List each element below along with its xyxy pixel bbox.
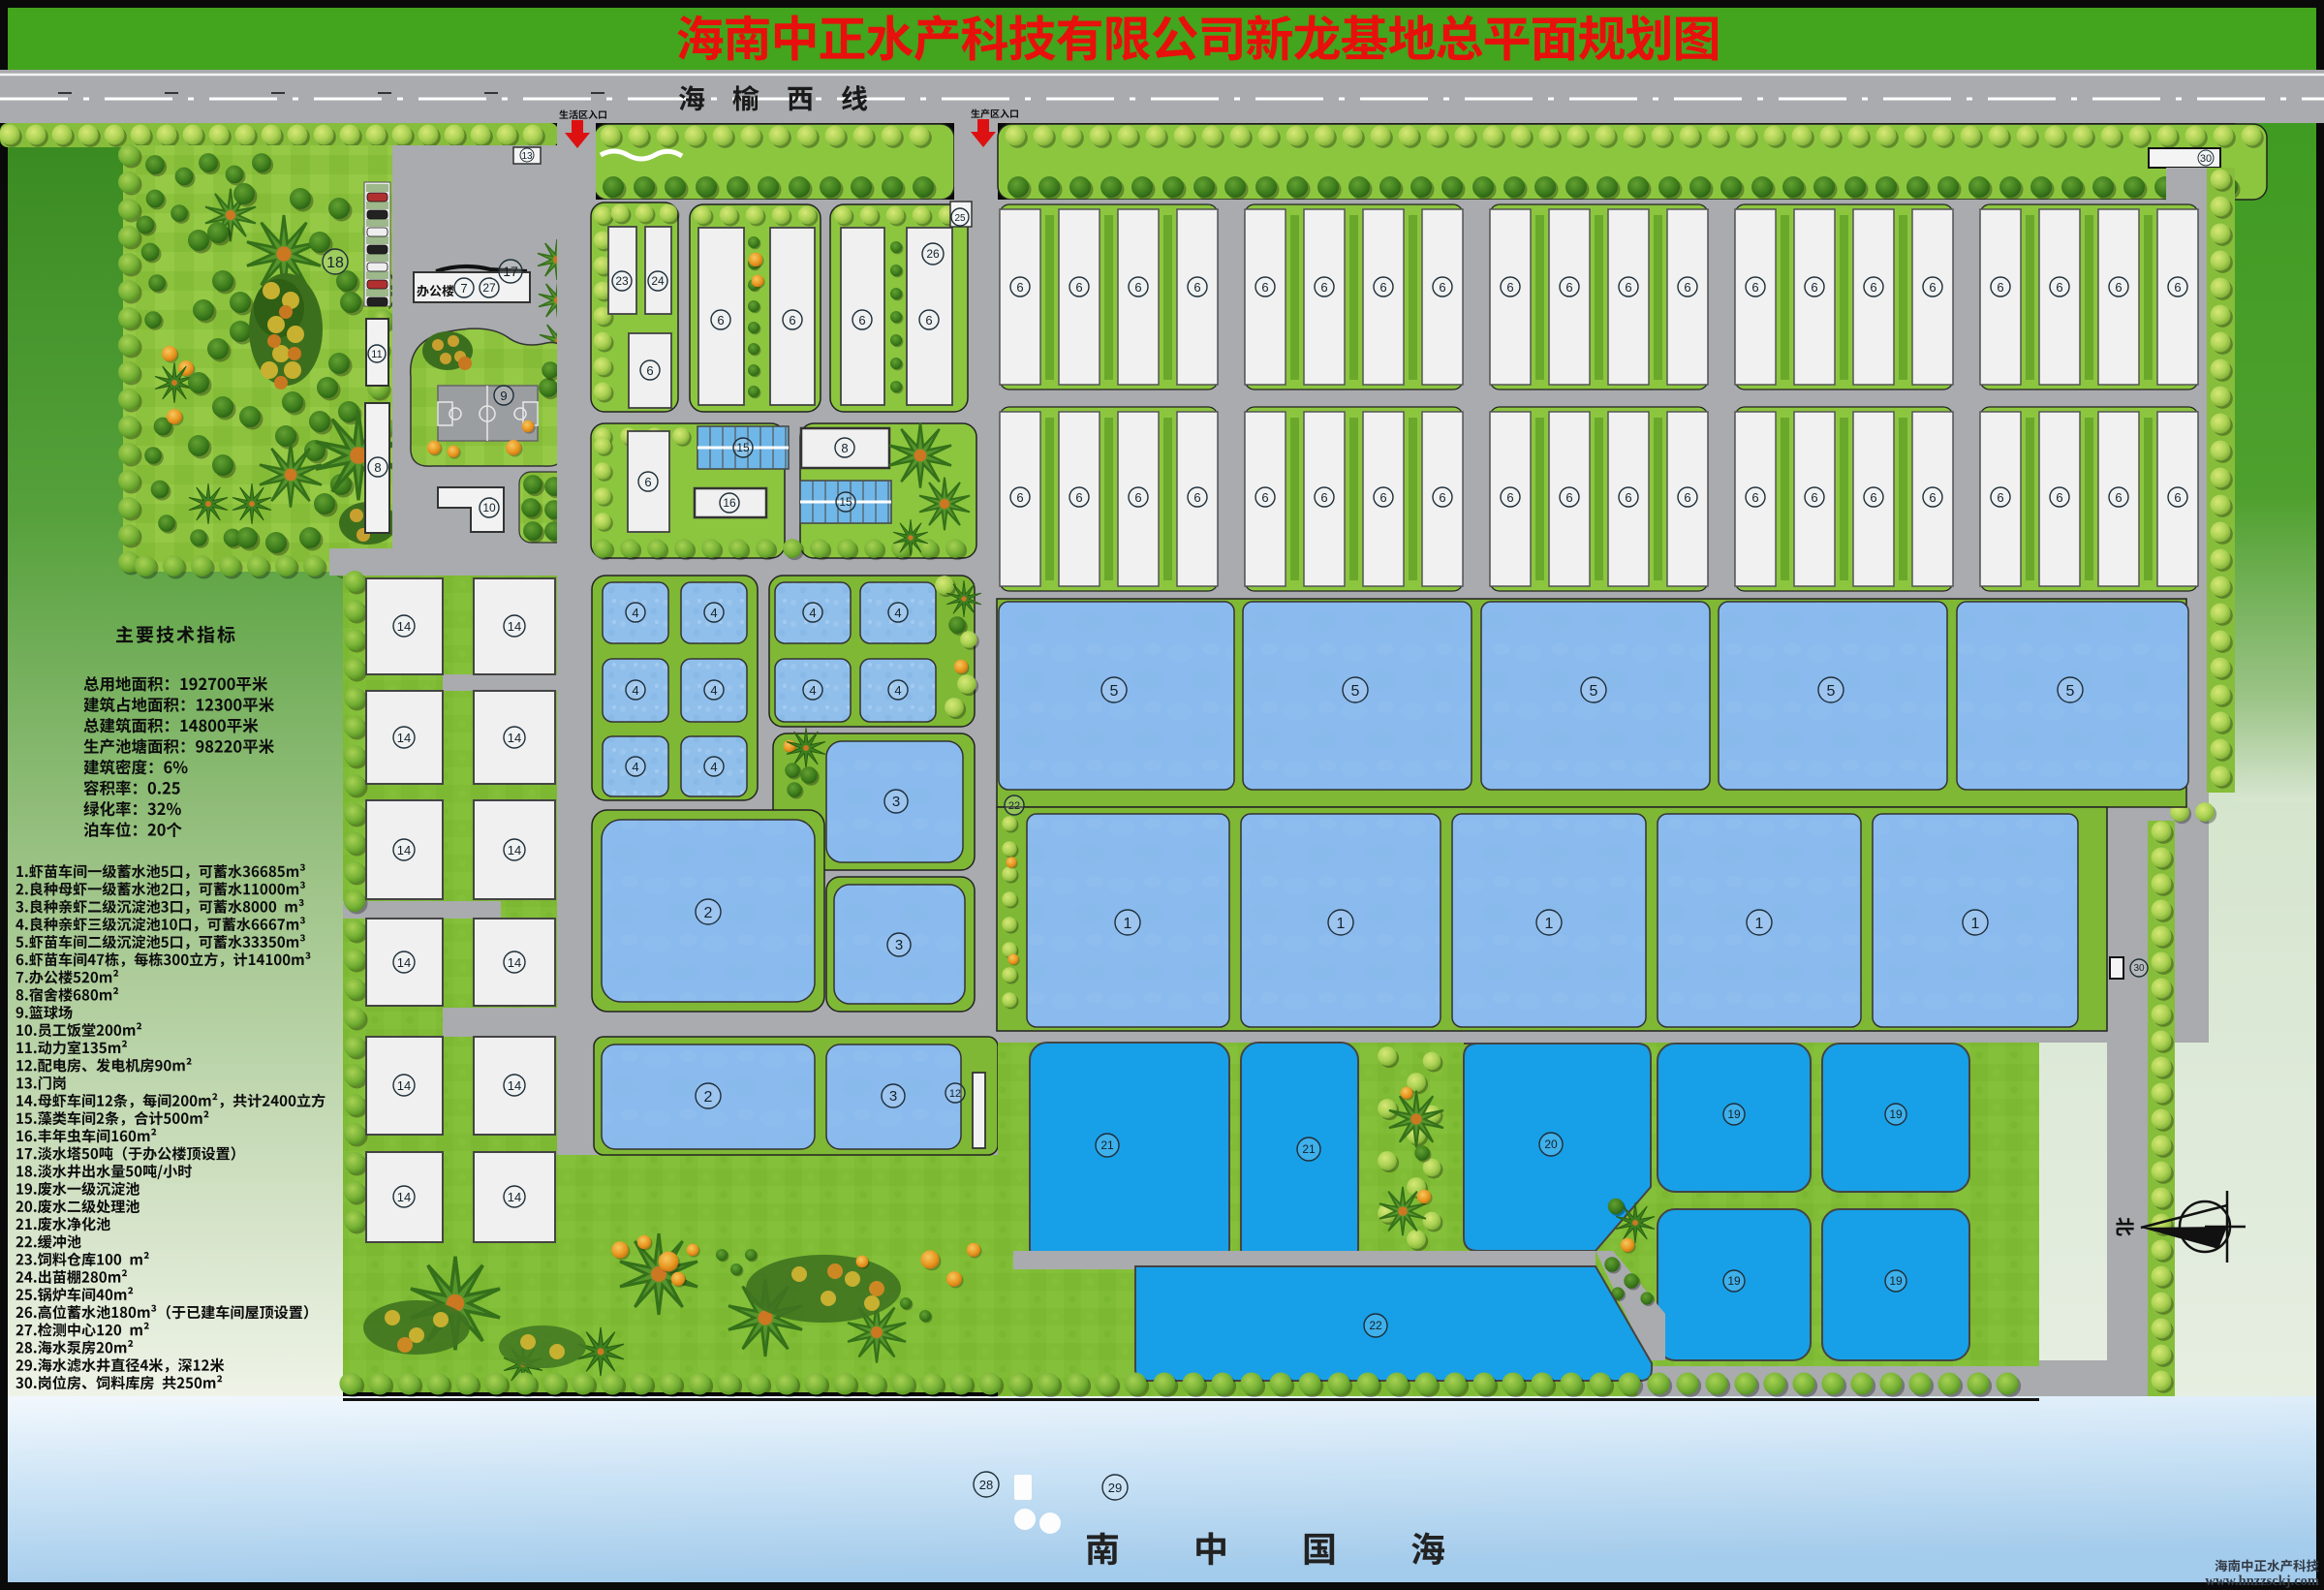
svg-text:14: 14 bbox=[397, 843, 411, 857]
svg-text:1: 1 bbox=[1971, 916, 1980, 932]
svg-text:10: 10 bbox=[482, 501, 496, 514]
svg-text:6: 6 bbox=[1261, 490, 1268, 505]
svg-text:21: 21 bbox=[1100, 1138, 1114, 1152]
svg-text:28: 28 bbox=[979, 1478, 993, 1492]
svg-text:6: 6 bbox=[2056, 490, 2062, 505]
svg-text:6: 6 bbox=[1320, 280, 1327, 295]
svg-text:6: 6 bbox=[1751, 490, 1758, 505]
svg-text:14: 14 bbox=[397, 955, 411, 970]
svg-text:13: 13 bbox=[521, 151, 533, 162]
svg-text:27: 27 bbox=[482, 281, 496, 295]
svg-text:18: 18 bbox=[326, 255, 344, 271]
svg-text:6: 6 bbox=[1684, 280, 1690, 295]
svg-text:4: 4 bbox=[894, 683, 901, 698]
svg-text:19: 19 bbox=[1889, 1107, 1903, 1121]
svg-text:26: 26 bbox=[926, 247, 940, 261]
svg-text:8: 8 bbox=[374, 460, 381, 475]
svg-text:6: 6 bbox=[644, 475, 651, 489]
svg-text:15: 15 bbox=[736, 441, 750, 454]
svg-text:6: 6 bbox=[1625, 280, 1631, 295]
svg-text:14: 14 bbox=[397, 1078, 411, 1093]
svg-text:11: 11 bbox=[371, 349, 382, 360]
svg-text:30: 30 bbox=[2200, 153, 2212, 165]
svg-text:17: 17 bbox=[503, 264, 518, 279]
svg-text:6: 6 bbox=[1811, 490, 1817, 505]
svg-text:www.hnzzsckj.com: www.hnzzsckj.com bbox=[2205, 1574, 2319, 1589]
svg-text:1: 1 bbox=[1337, 916, 1346, 932]
svg-text:6: 6 bbox=[1134, 280, 1141, 295]
svg-text:2: 2 bbox=[704, 1089, 713, 1106]
svg-text:24: 24 bbox=[651, 274, 665, 288]
svg-text:6: 6 bbox=[1997, 280, 2003, 295]
svg-text:6: 6 bbox=[925, 313, 932, 327]
svg-text:6: 6 bbox=[1997, 490, 2003, 505]
svg-text:4: 4 bbox=[632, 760, 638, 774]
svg-text:14: 14 bbox=[508, 1078, 521, 1093]
svg-text:6: 6 bbox=[1811, 280, 1817, 295]
svg-text:6: 6 bbox=[2115, 280, 2122, 295]
svg-text:5: 5 bbox=[1827, 683, 1836, 700]
svg-text:2: 2 bbox=[704, 905, 713, 921]
svg-text:29: 29 bbox=[1108, 1481, 1122, 1495]
svg-text:6: 6 bbox=[1751, 280, 1758, 295]
svg-text:14: 14 bbox=[508, 731, 521, 745]
svg-text:25: 25 bbox=[954, 213, 966, 224]
svg-text:30: 30 bbox=[2133, 963, 2145, 974]
svg-text:14: 14 bbox=[397, 1190, 411, 1204]
svg-text:14: 14 bbox=[397, 619, 411, 634]
svg-text:6: 6 bbox=[1506, 280, 1513, 295]
svg-text:20: 20 bbox=[1544, 1138, 1558, 1151]
svg-text:6: 6 bbox=[1193, 490, 1200, 505]
svg-text:22: 22 bbox=[1369, 1319, 1382, 1332]
svg-text:14: 14 bbox=[508, 1190, 521, 1204]
svg-text:1: 1 bbox=[1755, 916, 1764, 932]
svg-text:5: 5 bbox=[1351, 683, 1360, 700]
svg-text:6: 6 bbox=[1684, 490, 1690, 505]
svg-text:3: 3 bbox=[895, 937, 903, 953]
svg-text:16: 16 bbox=[723, 496, 736, 510]
svg-text:8: 8 bbox=[841, 441, 848, 455]
svg-text:6: 6 bbox=[858, 313, 865, 327]
svg-text:19: 19 bbox=[1727, 1274, 1741, 1288]
svg-text:3: 3 bbox=[892, 794, 900, 810]
svg-text:6: 6 bbox=[1506, 490, 1513, 505]
svg-text:6: 6 bbox=[1016, 490, 1023, 505]
svg-text:6: 6 bbox=[1625, 490, 1631, 505]
svg-text:6: 6 bbox=[1439, 280, 1445, 295]
svg-text:6: 6 bbox=[789, 313, 795, 327]
svg-text:6: 6 bbox=[1075, 280, 1082, 295]
svg-text:7: 7 bbox=[460, 281, 467, 296]
svg-text:6: 6 bbox=[1261, 280, 1268, 295]
svg-text:19: 19 bbox=[1727, 1107, 1741, 1121]
svg-text:9: 9 bbox=[500, 389, 507, 403]
svg-text:4: 4 bbox=[710, 606, 717, 620]
svg-text:15: 15 bbox=[839, 495, 852, 509]
svg-text:4: 4 bbox=[894, 606, 901, 620]
svg-text:6: 6 bbox=[1565, 490, 1572, 505]
svg-text:23: 23 bbox=[615, 274, 629, 288]
svg-text:5: 5 bbox=[1590, 683, 1598, 700]
svg-text:14: 14 bbox=[508, 619, 521, 634]
svg-text:6: 6 bbox=[1379, 280, 1386, 295]
svg-text:4: 4 bbox=[809, 606, 816, 620]
svg-text:22: 22 bbox=[1008, 800, 1020, 812]
svg-text:1: 1 bbox=[1545, 916, 1554, 932]
svg-text:6: 6 bbox=[1439, 490, 1445, 505]
svg-text:12: 12 bbox=[949, 1088, 961, 1100]
svg-text:14: 14 bbox=[508, 843, 521, 857]
svg-text:5: 5 bbox=[1110, 683, 1119, 700]
svg-text:6: 6 bbox=[1193, 280, 1200, 295]
svg-text:6: 6 bbox=[2174, 280, 2181, 295]
svg-text:6: 6 bbox=[1870, 490, 1876, 505]
svg-text:6: 6 bbox=[1134, 490, 1141, 505]
svg-text:6: 6 bbox=[1320, 490, 1327, 505]
svg-text:6: 6 bbox=[2174, 490, 2181, 505]
svg-text:4: 4 bbox=[632, 683, 638, 698]
svg-text:4: 4 bbox=[809, 683, 816, 698]
svg-text:6: 6 bbox=[1379, 490, 1386, 505]
svg-text:6: 6 bbox=[717, 313, 724, 327]
svg-text:6: 6 bbox=[1870, 280, 1876, 295]
svg-text:19: 19 bbox=[1889, 1274, 1903, 1288]
svg-text:14: 14 bbox=[508, 955, 521, 970]
svg-text:4: 4 bbox=[632, 606, 638, 620]
svg-text:21: 21 bbox=[1302, 1142, 1316, 1156]
svg-text:4: 4 bbox=[710, 760, 717, 774]
svg-text:6: 6 bbox=[1075, 490, 1082, 505]
svg-text:6: 6 bbox=[1929, 490, 1936, 505]
svg-text:14: 14 bbox=[397, 731, 411, 745]
svg-text:5: 5 bbox=[2066, 683, 2075, 700]
svg-text:6: 6 bbox=[2115, 490, 2122, 505]
svg-text:6: 6 bbox=[1565, 280, 1572, 295]
svg-text:1: 1 bbox=[1124, 916, 1132, 932]
svg-text:3: 3 bbox=[889, 1088, 897, 1105]
svg-text:6: 6 bbox=[646, 363, 653, 378]
svg-text:6: 6 bbox=[1016, 280, 1023, 295]
svg-text:4: 4 bbox=[710, 683, 717, 698]
svg-text:6: 6 bbox=[1929, 280, 1936, 295]
svg-text:6: 6 bbox=[2056, 280, 2062, 295]
